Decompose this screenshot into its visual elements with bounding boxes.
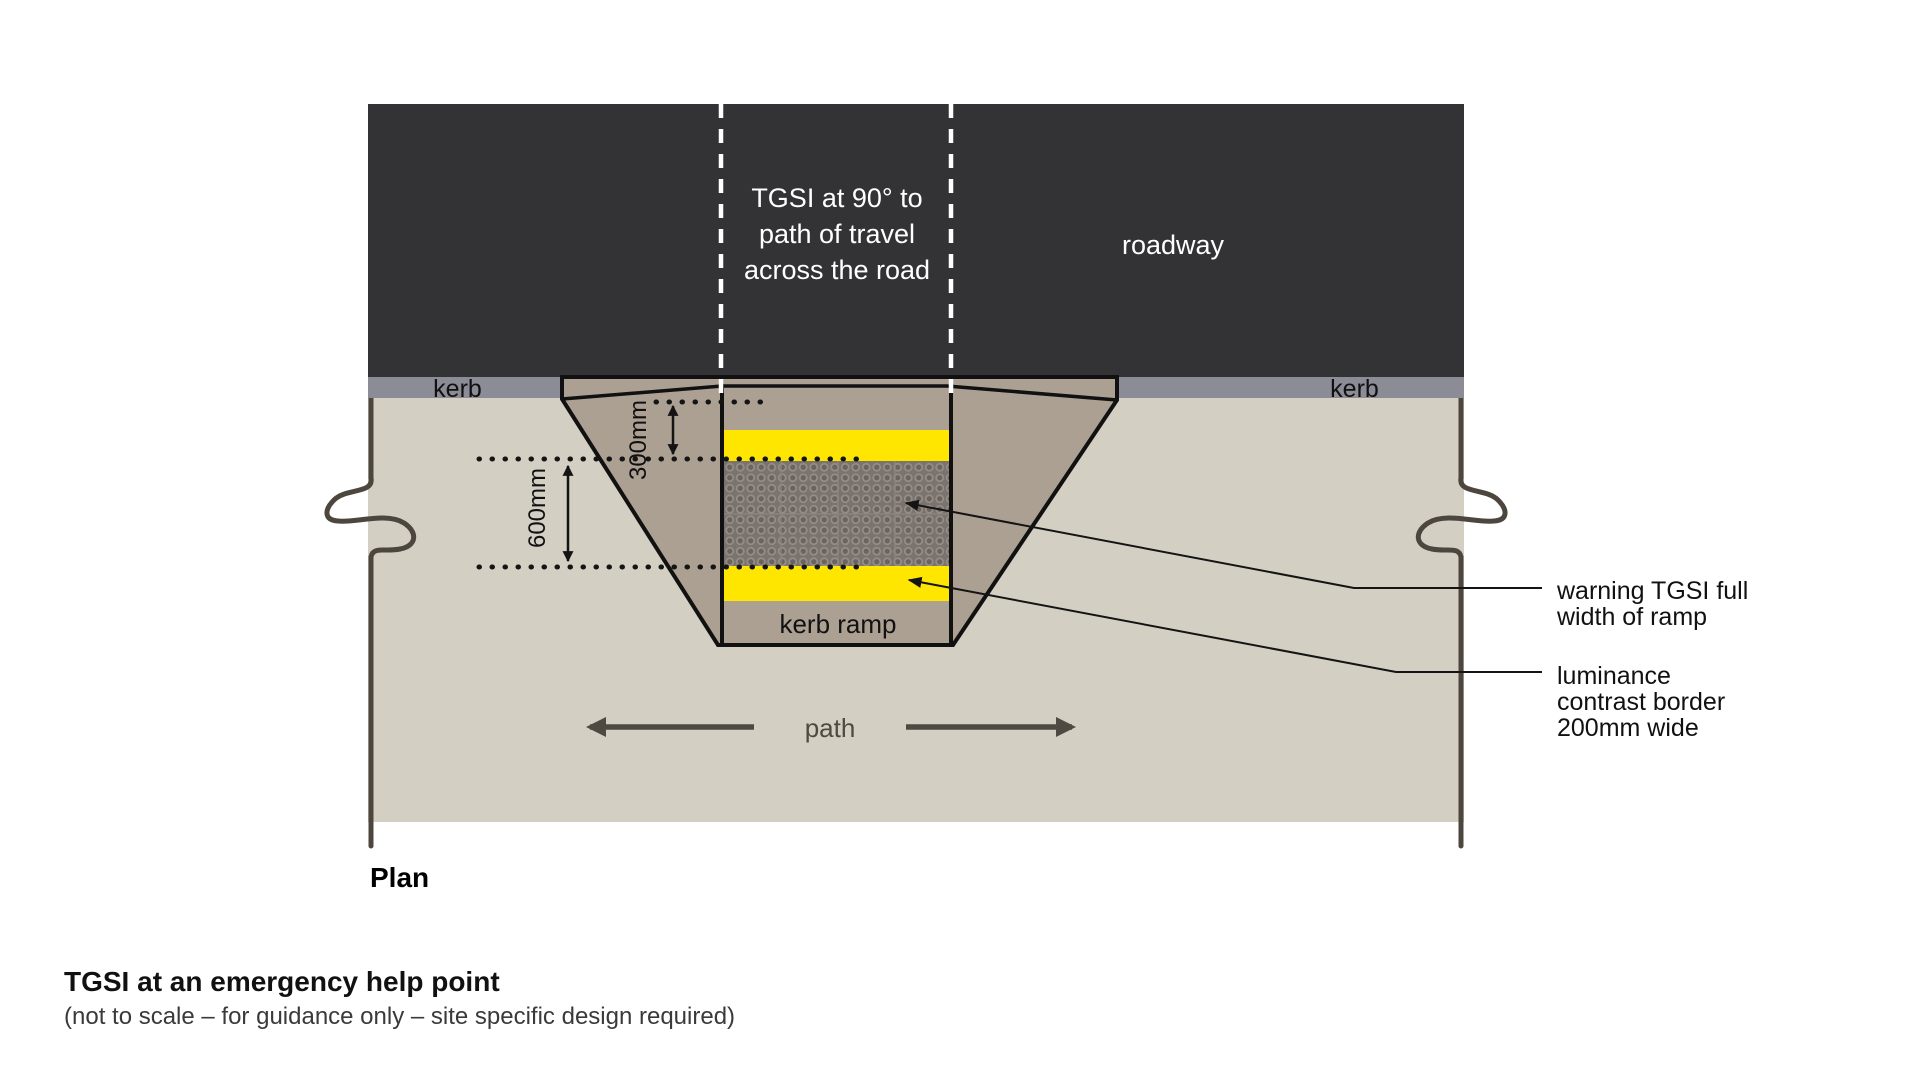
figure-subtitle: (not to scale – for guidance only – site… [64,1003,735,1031]
annotation-border-line2: contrast border [1557,689,1725,715]
roadway-label: roadway [1122,230,1224,261]
annotation-luminance-border: luminance contrast border 200mm wide [1557,663,1725,741]
luminance-border-bottom [724,566,949,601]
figure-title: TGSI at an emergency help point [64,966,500,998]
diagram-canvas: TGSI at 90° to path of travel across the… [0,0,1920,1080]
dimension-label-300mm: 300mm [624,385,654,495]
kerb-label-right: kerb [1302,375,1407,404]
plan-view-label: Plan [370,862,429,894]
kerb-strip-right [1118,377,1464,398]
dimension-label-600mm: 600mm [523,453,553,563]
kerb-ramp-label: kerb ramp [752,609,924,640]
road-note-line1: TGSI at 90° to [721,180,953,216]
annotation-warning-line1: warning TGSI full [1557,578,1748,604]
annotation-warning-line2: width of ramp [1557,604,1748,630]
plan-diagram [0,0,1920,1080]
road-note-line2: path of travel [721,216,953,252]
road-crossing-note: TGSI at 90° to path of travel across the… [721,180,953,288]
path-label: path [780,713,880,744]
annotation-border-line3: 200mm wide [1557,715,1725,741]
luminance-border-top [724,430,949,461]
annotation-warning-tgsi: warning TGSI full width of ramp [1557,578,1748,630]
road-note-line3: across the road [721,252,953,288]
annotation-border-line1: luminance [1557,663,1725,689]
kerb-label-left: kerb [405,375,510,404]
